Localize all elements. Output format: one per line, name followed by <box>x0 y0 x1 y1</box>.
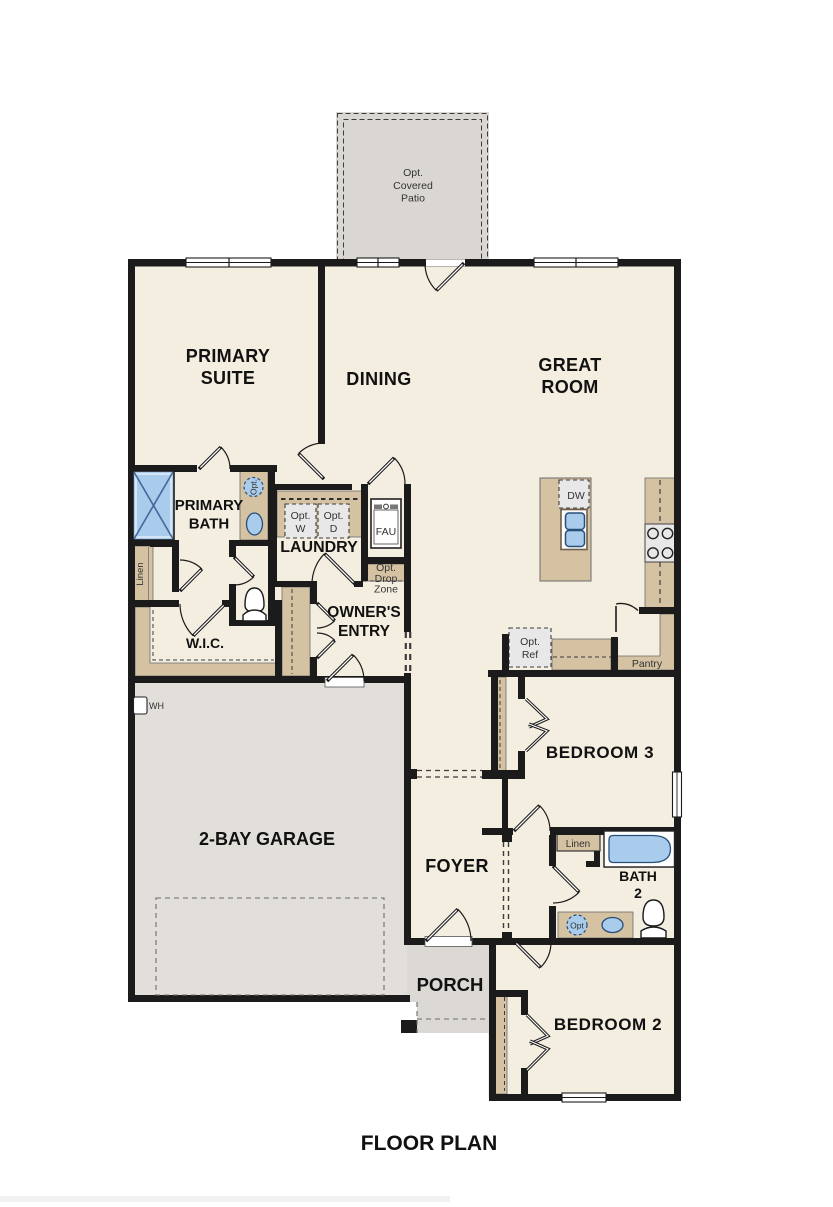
svg-text:FOYER: FOYER <box>425 856 489 876</box>
svg-text:DINING: DINING <box>346 369 411 389</box>
svg-text:2-BAY GARAGE: 2-BAY GARAGE <box>199 829 335 849</box>
svg-text:BEDROOM 3: BEDROOM 3 <box>546 743 654 762</box>
svg-text:Linen: Linen <box>566 839 590 850</box>
svg-text:Opt: Opt <box>570 921 584 931</box>
svg-text:OWNER'SENTRY: OWNER'SENTRY <box>327 604 400 640</box>
svg-text:FLOOR PLAN: FLOOR PLAN <box>361 1132 498 1155</box>
svg-text:Opt.DropZone: Opt.DropZone <box>374 562 398 596</box>
svg-text:FAU: FAU <box>376 526 396 538</box>
svg-text:Opt.Ref: Opt.Ref <box>520 636 540 661</box>
svg-text:BEDROOM 2: BEDROOM 2 <box>554 1015 662 1034</box>
svg-text:LAUNDRY: LAUNDRY <box>280 539 358 556</box>
svg-text:Opt.: Opt. <box>249 479 259 495</box>
svg-text:Pantry: Pantry <box>632 658 663 670</box>
svg-text:W.I.C.: W.I.C. <box>186 635 224 651</box>
svg-text:WH: WH <box>149 701 164 711</box>
svg-text:PORCH: PORCH <box>417 974 484 995</box>
svg-text:Linen: Linen <box>135 562 146 585</box>
svg-text:DW: DW <box>567 490 585 502</box>
